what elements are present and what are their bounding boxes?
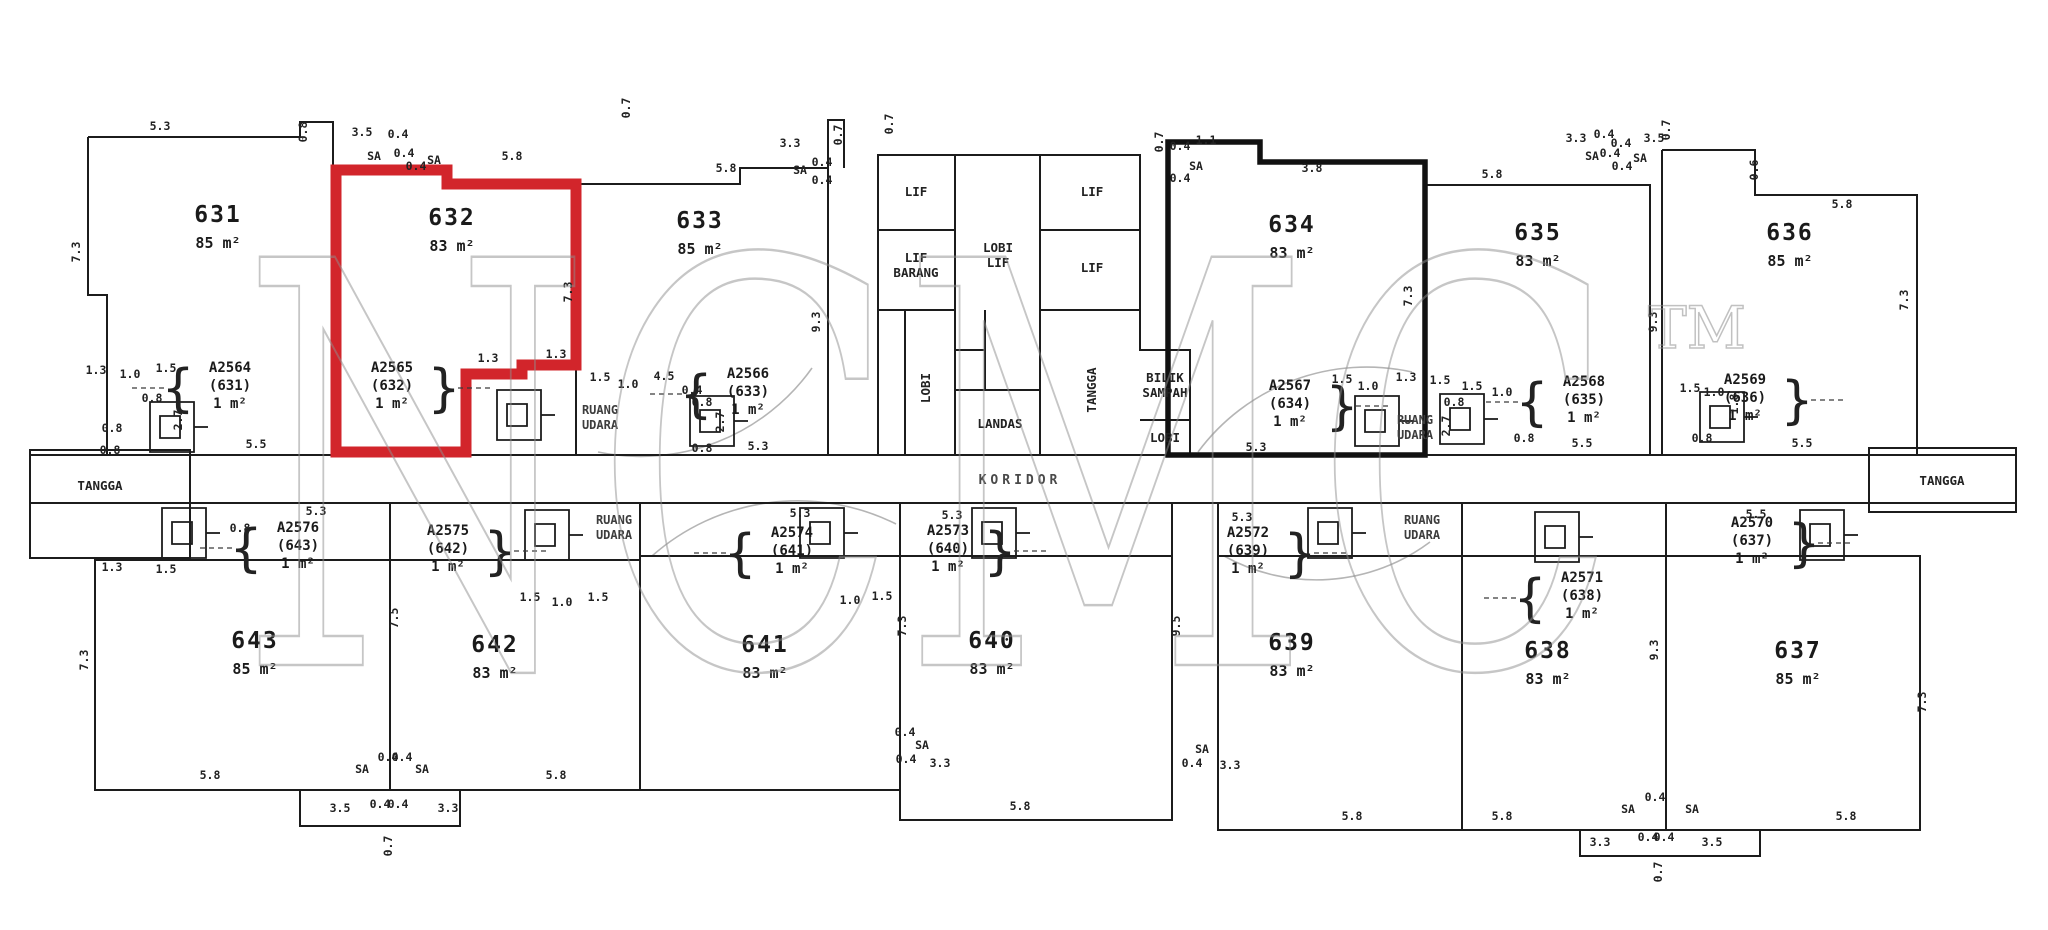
dimension-label: 5.8 — [1010, 799, 1031, 813]
dimension-label: 9.3 — [1647, 640, 1661, 661]
dimension-label: 0.4 — [388, 797, 409, 811]
dimension-label: 5.5 — [1746, 507, 1767, 521]
dimension-label: 5.8 — [200, 768, 221, 782]
dimension-label: SA — [1633, 151, 1647, 165]
dimension-label: 0.7 — [1651, 862, 1665, 883]
dimension-label: 1.1 — [1196, 133, 1217, 147]
dimension-label: 1.5 — [1680, 381, 1701, 395]
dimension-label: 0.4 — [1645, 790, 1666, 804]
dimension-label: 7.3 — [1915, 692, 1929, 713]
dimension-label: 1.3 — [102, 560, 123, 574]
wall-outline — [1666, 556, 1920, 830]
dimension-label: 7.3 — [77, 650, 91, 671]
dimension-label: 3.3 — [438, 801, 459, 815]
dimension-label: 0.7 — [619, 98, 633, 119]
dimension-label: 1.5 — [156, 361, 177, 375]
watermark-text: NCMC — [240, 146, 1620, 798]
dimension-label: 5.8 — [1492, 809, 1513, 823]
dimension-label: 0.8 — [296, 122, 310, 143]
unit-631-area: 85 m² — [195, 234, 240, 252]
dimension-label: 0.6 — [1747, 160, 1761, 181]
dimension-label: 5.5 — [1792, 436, 1813, 450]
parcel-label-a2570-line: 1 m² — [1735, 551, 1769, 567]
dimension-label: 0.7 — [882, 114, 896, 135]
dimension-label: 1.8 — [1727, 394, 1741, 415]
stairs-label-left: TANGGA — [77, 478, 123, 493]
unit-637-number: 637 — [1774, 638, 1822, 664]
closet-detail — [162, 508, 206, 558]
dimension-label: 0.7 — [381, 836, 395, 857]
unit-637-area: 85 m² — [1775, 670, 1820, 688]
unit-631-number: 631 — [194, 202, 242, 228]
parcel-label-a2569-line: A2569 — [1724, 372, 1766, 388]
dimension-label: 0.7 — [831, 125, 845, 146]
dimension-label: 5.8 — [1342, 809, 1363, 823]
dimension-label: 5.8 — [1832, 197, 1853, 211]
dimension-label: 0.7 — [1659, 120, 1673, 141]
unit-636-number: 636 — [1766, 220, 1814, 246]
dimension-label: 3.5 — [330, 801, 351, 815]
dimension-label: 3.3 — [1590, 835, 1611, 849]
dimension-label: 0.4 — [388, 127, 409, 141]
dimension-label: 0.8 — [1692, 431, 1713, 445]
dimension-label: SA — [1685, 802, 1699, 816]
dimension-label: 7.3 — [1897, 290, 1911, 311]
dimension-label: 1.3 — [86, 363, 107, 377]
dimension-label: 2.7 — [171, 410, 185, 431]
dimension-label: 5.8 — [1836, 809, 1857, 823]
floor-plan-page: 63185 m²63283 m²63385 m²63483 m²63583 m²… — [0, 0, 2048, 930]
dimension-label: 0.4 — [1654, 830, 1675, 844]
dimension-label: 1.5 — [156, 562, 177, 576]
dimension-label: 3.3 — [1566, 131, 1587, 145]
dimension-label: 3.5 — [1702, 835, 1723, 849]
unit-636-area: 85 m² — [1767, 252, 1812, 270]
parcel-label-a2570: A2570(637)1 m² — [1731, 515, 1773, 567]
dimension-label: 7.3 — [69, 242, 83, 263]
brace-glyph: } — [1787, 514, 1820, 574]
brace-glyph: } — [1780, 371, 1813, 431]
dimension-label: 0.8 — [102, 421, 123, 435]
watermark-tm: TM — [1648, 294, 1746, 362]
parcel-label-a2570-line: (637) — [1731, 533, 1773, 549]
stairs-label-right: TANGGA — [1919, 473, 1965, 488]
dimension-label: 0.8 — [142, 391, 163, 405]
dimension-label: 5.3 — [150, 119, 171, 133]
dimension-label: 1.0 — [1704, 385, 1725, 399]
dimension-label: 0.8 — [100, 443, 121, 457]
dimension-label: 1.0 — [120, 367, 141, 381]
dimension-label: SA — [1621, 802, 1635, 816]
dimension-label: 3.5 — [352, 125, 373, 139]
floor-plan-drawing: 63185 m²63283 m²63385 m²63483 m²63583 m²… — [0, 0, 2048, 930]
